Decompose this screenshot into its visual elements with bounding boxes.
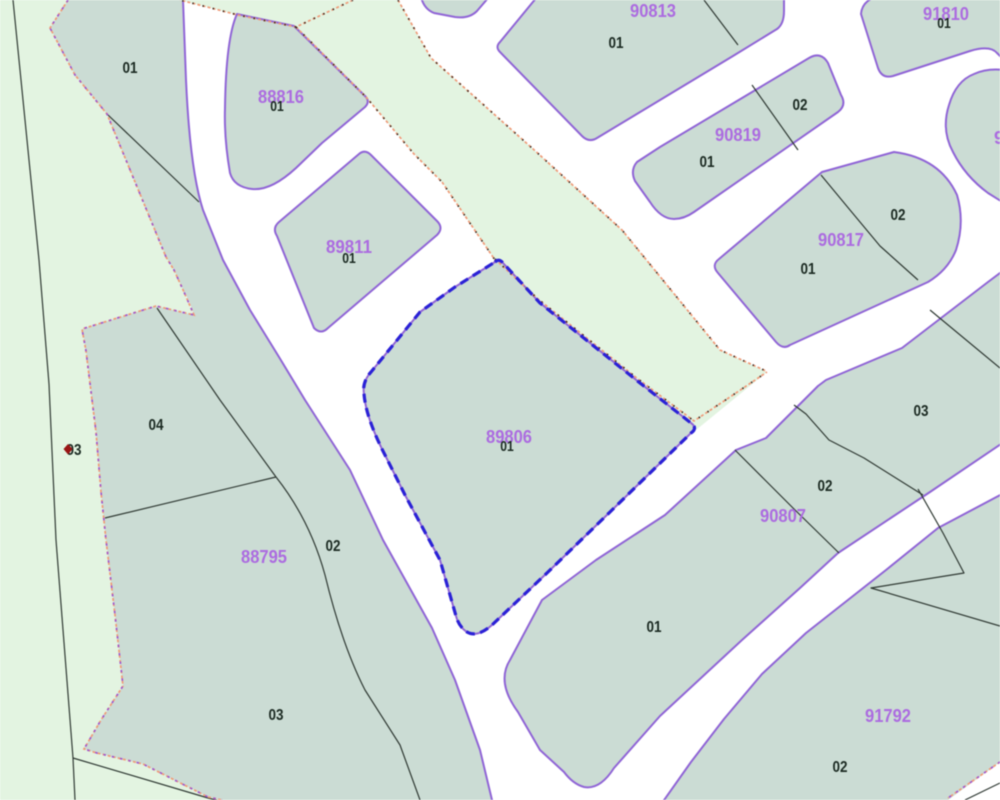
svg-text:90813: 90813 [630, 1, 676, 21]
svg-text:02: 02 [833, 759, 848, 776]
svg-text:9: 9 [994, 128, 1000, 148]
svg-text:90819: 90819 [715, 125, 761, 145]
svg-text:01: 01 [342, 251, 356, 267]
svg-text:01: 01 [700, 154, 715, 171]
svg-text:88795: 88795 [241, 547, 287, 567]
svg-text:03: 03 [914, 403, 929, 420]
svg-text:01: 01 [500, 439, 514, 455]
svg-text:02: 02 [793, 97, 808, 114]
svg-text:91792: 91792 [865, 706, 911, 726]
svg-text:01: 01 [801, 261, 816, 278]
svg-text:01: 01 [270, 99, 284, 115]
svg-text:02: 02 [326, 538, 341, 555]
svg-text:01: 01 [609, 35, 624, 52]
svg-text:01: 01 [647, 619, 662, 636]
svg-text:03: 03 [269, 707, 284, 724]
svg-text:90817: 90817 [818, 230, 864, 250]
svg-text:04: 04 [149, 417, 164, 434]
svg-text:01: 01 [937, 16, 951, 32]
svg-text:90807: 90807 [760, 506, 806, 526]
svg-text:02: 02 [818, 478, 833, 495]
svg-text:02: 02 [891, 207, 906, 224]
svg-text:01: 01 [123, 60, 138, 77]
